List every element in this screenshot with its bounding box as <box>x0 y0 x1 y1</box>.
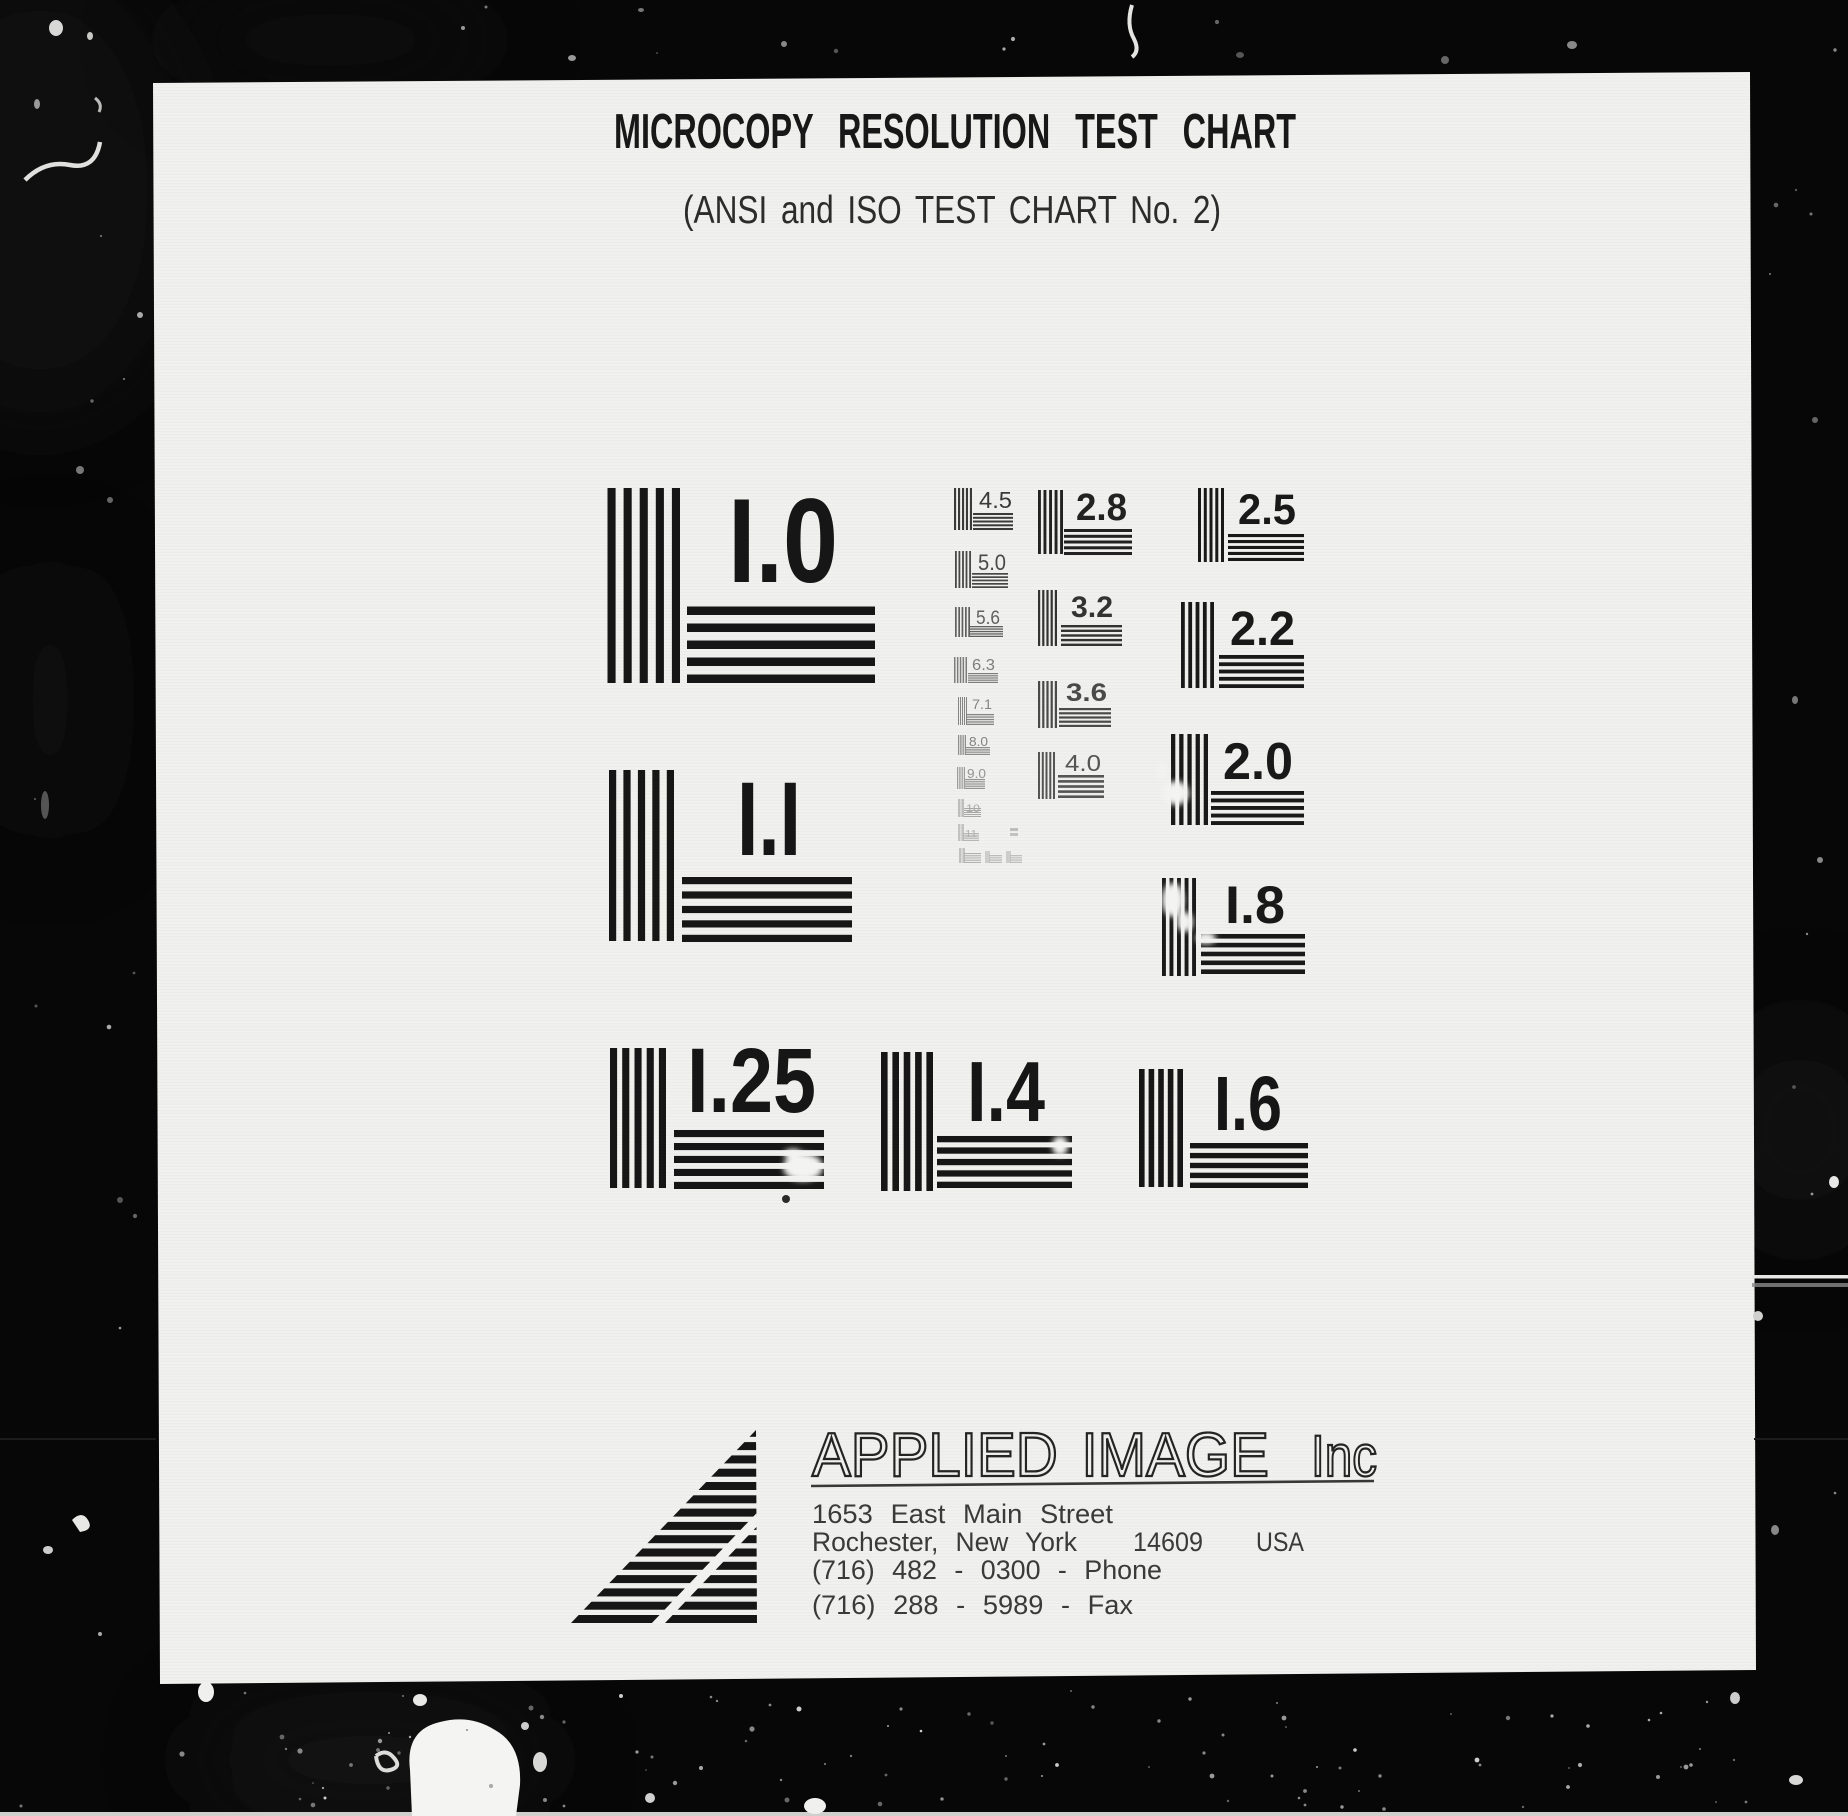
svg-text:I.8: I.8 <box>1225 876 1285 935</box>
svg-text:5.6: 5.6 <box>976 608 1000 629</box>
svg-text:4.5: 4.5 <box>979 487 1012 513</box>
svg-text:2.8: 2.8 <box>1076 487 1127 529</box>
svg-text:6.3: 6.3 <box>972 657 995 674</box>
svg-text:I.25: I.25 <box>687 1030 816 1132</box>
svg-text:9.0: 9.0 <box>967 766 986 781</box>
svg-text:MICROCOPY RESOLUTION TEST CHAR: MICROCOPY RESOLUTION TEST CHART <box>614 105 1296 159</box>
svg-text:3.6: 3.6 <box>1066 679 1107 707</box>
svg-text:USA: USA <box>1256 1527 1304 1557</box>
svg-text:Rochester, New York: Rochester, New York <box>812 1527 1077 1557</box>
svg-text:4.0: 4.0 <box>1065 750 1101 776</box>
svg-text:Inc: Inc <box>1311 1424 1377 1489</box>
svg-text:2.2: 2.2 <box>1230 603 1295 656</box>
svg-text:1653 East Main Street: 1653 East Main Street <box>812 1499 1114 1529</box>
svg-text:I.6: I.6 <box>1214 1061 1282 1147</box>
svg-text:I.0: I.0 <box>728 474 838 608</box>
svg-text:14609: 14609 <box>1133 1527 1203 1557</box>
svg-text:3.2: 3.2 <box>1071 591 1113 624</box>
svg-text:I.4: I.4 <box>967 1045 1045 1140</box>
svg-text:(716) 482 - 0300 - Phone: (716) 482 - 0300 - Phone <box>812 1555 1162 1585</box>
svg-text:APPLIED IMAGE: APPLIED IMAGE <box>812 1421 1269 1490</box>
svg-text:(ANSI and ISO TEST CHART No. 2: (ANSI and ISO TEST CHART No. 2) <box>683 189 1221 232</box>
svg-text:I.I: I.I <box>737 761 801 878</box>
svg-text:(716) 288 - 5989 - Fax: (716) 288 - 5989 - Fax <box>812 1590 1133 1620</box>
svg-text:2.0: 2.0 <box>1223 733 1293 791</box>
svg-text:5.0: 5.0 <box>978 550 1006 575</box>
svg-text:8.0: 8.0 <box>969 734 988 749</box>
svg-text:7.1: 7.1 <box>972 696 992 712</box>
svg-text:2.5: 2.5 <box>1238 486 1296 534</box>
